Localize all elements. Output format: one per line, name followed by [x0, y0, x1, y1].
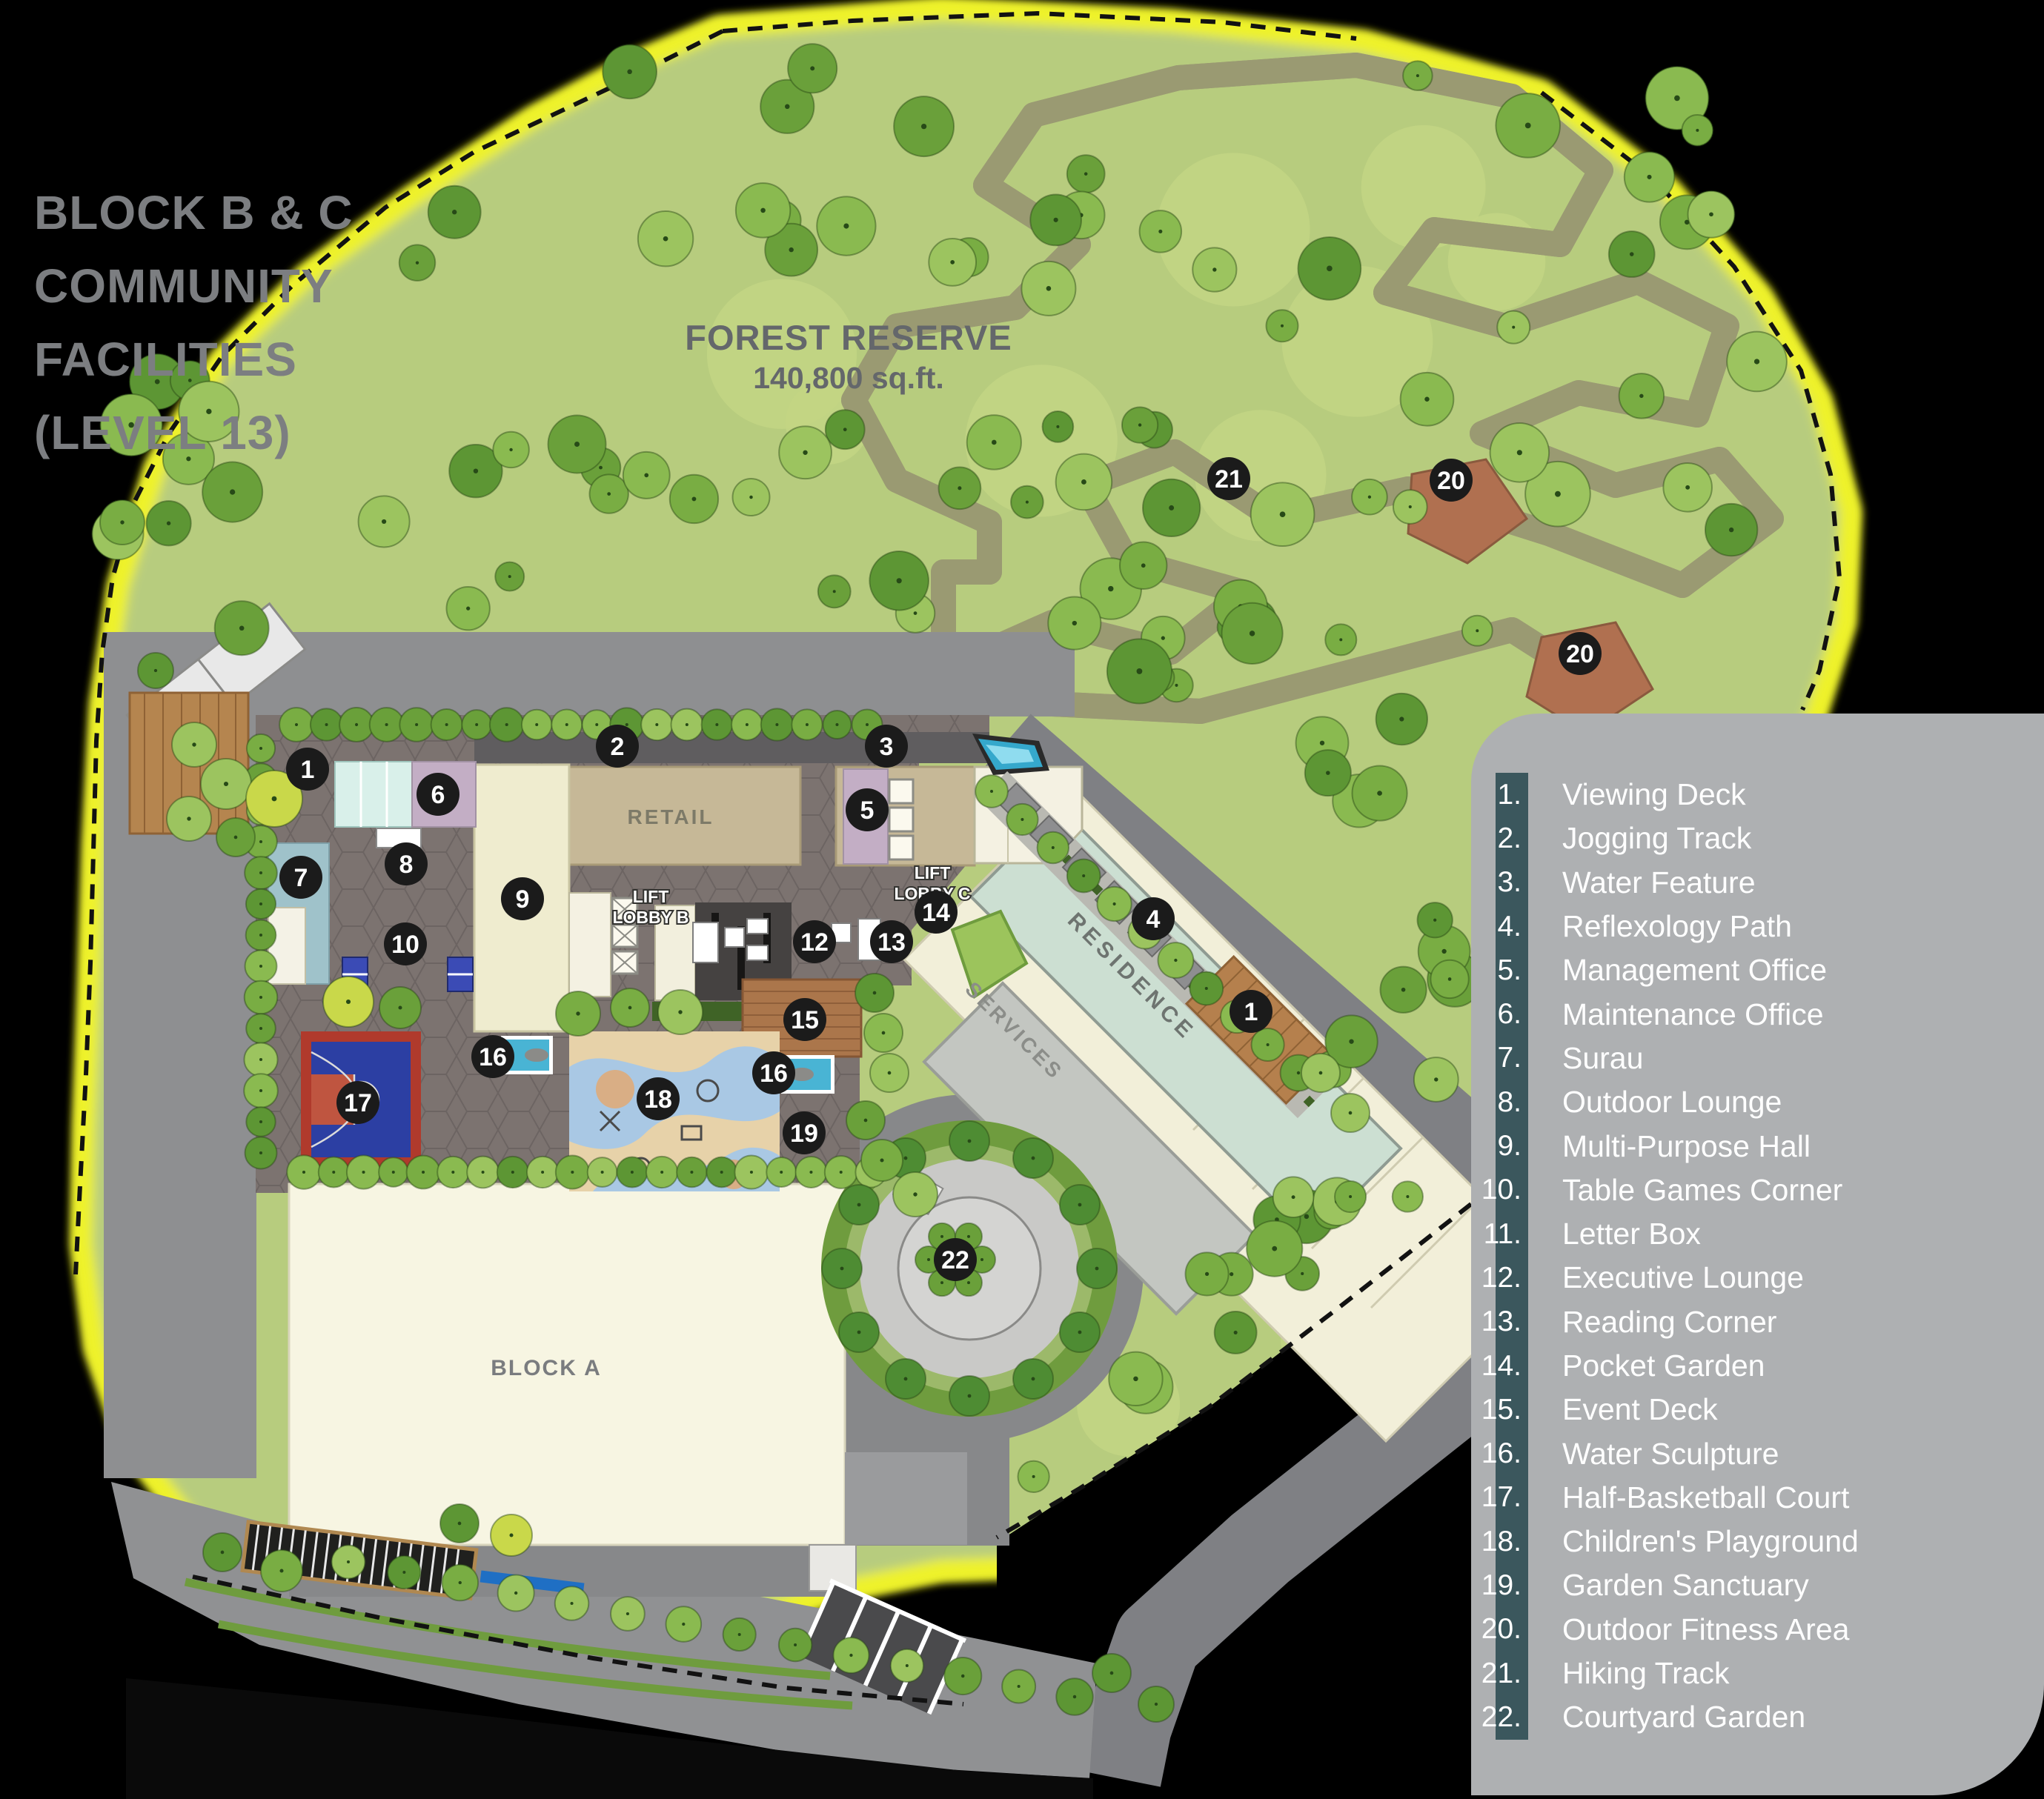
map-marker: 2 [596, 725, 639, 768]
legend-item-label: Water Sculpture [1562, 1437, 1779, 1472]
map-marker: 15 [783, 998, 826, 1041]
legend-item-number: 13. [1496, 1300, 1528, 1344]
legend-item-label: Viewing Deck [1562, 777, 1746, 812]
map-marker: 19 [783, 1111, 826, 1154]
legend-item: 2.Jogging Track [1496, 817, 2014, 860]
legend-item-number: 8. [1496, 1080, 1528, 1124]
legend-item: 20.Outdoor Fitness Area [1496, 1608, 2014, 1652]
legend-item: 8.Outdoor Lounge [1496, 1080, 2014, 1124]
legend-item: 16.Water Sculpture [1496, 1431, 2014, 1475]
svg-text:5: 5 [860, 797, 875, 825]
legend-item-number: 14. [1496, 1344, 1528, 1388]
map-marker: 16 [471, 1035, 514, 1078]
legend-item: 14.Pocket Garden [1496, 1344, 2014, 1388]
map-marker: 9 [501, 877, 544, 920]
legend-item: 11.Letter Box [1496, 1212, 2014, 1256]
map-marker: 7 [279, 856, 322, 899]
legend-item-number: 2. [1496, 817, 1528, 860]
page-title: BLOCK B & C COMMUNITY FACILITIES (LEVEL … [34, 176, 354, 470]
legend-item-label: Table Games Corner [1562, 1173, 1842, 1208]
svg-text:1: 1 [301, 756, 315, 784]
legend-item-number: 1. [1496, 773, 1528, 817]
svg-text:14: 14 [922, 899, 950, 927]
site-plan-page: RETAIL LIFT LOBBY B LIFT LOBBY C RESIDEN… [0, 0, 2044, 1799]
svg-text:21: 21 [1215, 465, 1243, 493]
svg-text:13: 13 [877, 928, 906, 957]
svg-text:2: 2 [611, 733, 625, 761]
legend-item-number: 17. [1496, 1476, 1528, 1520]
legend-item-number: 7. [1496, 1037, 1528, 1080]
legend-item-label: Half-Basketball Court [1562, 1480, 1849, 1515]
svg-text:12: 12 [800, 928, 829, 957]
svg-text:6: 6 [431, 781, 445, 809]
legend-item-label: Water Feature [1562, 865, 1756, 900]
legend-item: 13.Reading Corner [1496, 1300, 2014, 1344]
svg-text:16: 16 [479, 1043, 507, 1071]
legend-item-label: Pocket Garden [1562, 1349, 1765, 1383]
legend-item-number: 11. [1496, 1212, 1528, 1256]
map-marker: 18 [637, 1077, 680, 1120]
forest-reserve-name: FOREST RESERVE [619, 317, 1078, 358]
title-line: COMMUNITY [34, 250, 354, 323]
map-marker: 3 [865, 725, 908, 768]
svg-text:18: 18 [644, 1085, 672, 1114]
legend-item-number: 6. [1496, 992, 1528, 1036]
svg-text:20: 20 [1566, 640, 1594, 668]
svg-text:8: 8 [399, 851, 414, 879]
svg-text:10: 10 [391, 931, 419, 959]
legend-item-label: Outdoor Fitness Area [1562, 1612, 1849, 1647]
svg-text:7: 7 [294, 864, 308, 892]
legend-item: 12.Executive Lounge [1496, 1256, 2014, 1300]
map-marker: 12 [793, 920, 836, 963]
svg-text:20: 20 [1437, 467, 1465, 495]
map-marker: 21 [1207, 457, 1250, 500]
legend-item-label: Reflexology Path [1562, 909, 1792, 944]
legend-item-label: Reading Corner [1562, 1305, 1776, 1340]
legend-item-label: Multi-Purpose Hall [1562, 1129, 1811, 1164]
svg-text:19: 19 [790, 1120, 818, 1148]
legend-item-number: 4. [1496, 905, 1528, 948]
legend-item-label: Surau [1562, 1041, 1643, 1076]
legend-item-number: 19. [1496, 1563, 1528, 1607]
legend-item-label: Outdoor Lounge [1562, 1085, 1782, 1120]
map-marker: 20 [1559, 632, 1602, 675]
legend-item: 22.Courtyard Garden [1496, 1695, 2014, 1739]
legend-item: 1.Viewing Deck [1496, 773, 2014, 817]
map-marker: 16 [752, 1051, 795, 1094]
retail-label: RETAIL [627, 805, 714, 828]
map-marker: 8 [385, 842, 428, 885]
svg-text:1: 1 [1244, 998, 1258, 1026]
legend-item: 19.Garden Sanctuary [1496, 1563, 2014, 1607]
forest-reserve-area-text: 140,800 sq.ft. [619, 361, 1078, 396]
legend-item-number: 9. [1496, 1124, 1528, 1168]
legend-item-number: 12. [1496, 1256, 1528, 1300]
legend-item: 21.Hiking Track [1496, 1652, 2014, 1695]
legend-item-number: 22. [1496, 1695, 1528, 1739]
svg-text:15: 15 [791, 1006, 819, 1034]
legend-item: 17.Half-Basketball Court [1496, 1476, 2014, 1520]
map-marker: 17 [336, 1081, 379, 1124]
map-marker: 10 [384, 922, 427, 965]
legend-item-number: 10. [1496, 1168, 1528, 1212]
title-line: FACILITIES [34, 323, 354, 396]
legend-item-label: Hiking Track [1562, 1656, 1730, 1691]
map-marker: 4 [1132, 897, 1175, 940]
svg-text:9: 9 [516, 885, 530, 914]
legend-item-number: 15. [1496, 1388, 1528, 1431]
legend-item: 4.Reflexology Path [1496, 905, 2014, 948]
map-marker: 20 [1430, 459, 1473, 502]
title-line: BLOCK B & C [34, 176, 354, 250]
title-line: (LEVEL 13) [34, 396, 354, 470]
map-marker: 5 [846, 788, 889, 831]
lift-lobby-b-label: LIFT [633, 887, 669, 906]
map-marker: 14 [915, 891, 958, 934]
svg-text:17: 17 [344, 1089, 372, 1117]
legend-item: 10.Table Games Corner [1496, 1168, 2014, 1212]
legend-list: 1.Viewing Deck2.Jogging Track3.Water Fea… [1496, 773, 2014, 1740]
legend-item-label: Children's Playground [1562, 1524, 1859, 1559]
legend-item-number: 20. [1496, 1608, 1528, 1652]
legend-item: 6.Maintenance Office [1496, 992, 2014, 1036]
svg-text:22: 22 [941, 1246, 969, 1274]
legend-item-number: 5. [1496, 948, 1528, 992]
map-marker: 6 [417, 773, 459, 816]
legend-item: 7.Surau [1496, 1037, 2014, 1080]
forest-reserve-label: FOREST RESERVE 140,800 sq.ft. [619, 317, 1078, 396]
svg-text:3: 3 [880, 733, 894, 761]
legend-item-number: 3. [1496, 861, 1528, 905]
legend-item-label: Executive Lounge [1562, 1260, 1804, 1295]
legend-item-label: Jogging Track [1562, 821, 1751, 856]
legend-item: 5.Management Office [1496, 948, 2014, 992]
map-marker: 13 [870, 920, 913, 963]
legend-item-label: Courtyard Garden [1562, 1700, 1805, 1735]
legend-item-label: Event Deck [1562, 1392, 1718, 1427]
legend-item-number: 18. [1496, 1520, 1528, 1563]
legend-item-label: Maintenance Office [1562, 997, 1824, 1032]
legend-item-number: 16. [1496, 1431, 1528, 1475]
svg-text:4: 4 [1147, 905, 1161, 934]
svg-text:16: 16 [760, 1060, 788, 1088]
legend-item: 3.Water Feature [1496, 861, 2014, 905]
lift-lobby-c-label: LIFT [915, 863, 951, 882]
block-a-label: BLOCK A [491, 1356, 602, 1380]
legend-item: 9.Multi-Purpose Hall [1496, 1124, 2014, 1168]
map-marker: 1 [286, 748, 329, 791]
legend-item-label: Management Office [1562, 953, 1827, 988]
legend-panel: 1.Viewing Deck2.Jogging Track3.Water Fea… [1471, 714, 2044, 1795]
map-marker: 22 [934, 1238, 977, 1281]
map-marker: 1 [1230, 990, 1272, 1033]
legend-item: 15.Event Deck [1496, 1388, 2014, 1431]
legend-item-label: Garden Sanctuary [1562, 1568, 1809, 1603]
legend-item-label: Letter Box [1562, 1217, 1701, 1251]
legend-item-number: 21. [1496, 1652, 1528, 1695]
legend-item: 18.Children's Playground [1496, 1520, 2014, 1563]
svg-text:LOBBY B: LOBBY B [612, 908, 688, 927]
